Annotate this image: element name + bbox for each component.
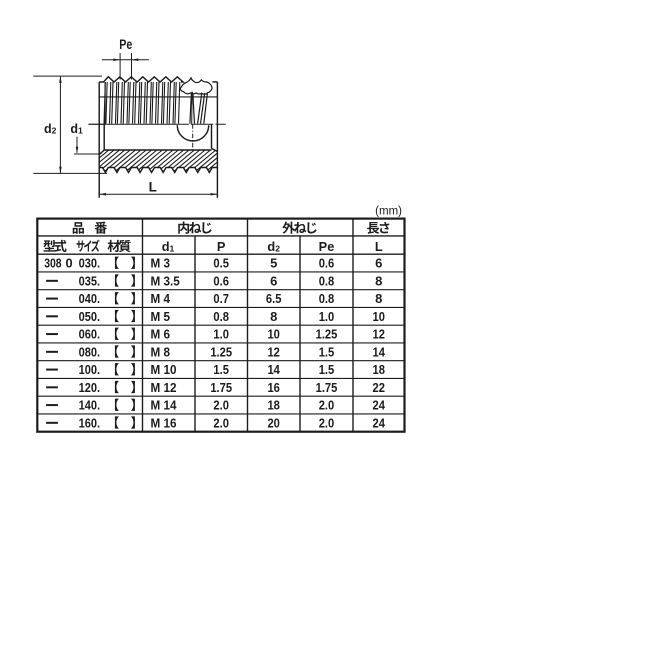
svg-text:160.: 160. [79,415,101,430]
svg-text:035.: 035. [79,273,101,288]
svg-text:080.: 080. [79,344,101,359]
svg-text:L: L [149,180,157,195]
svg-text:030.: 030. [79,256,101,271]
svg-text:M 4: M 4 [151,291,171,306]
svg-text:M 14: M 14 [151,398,178,413]
svg-text:0.8: 0.8 [319,291,335,306]
svg-text:2.0: 2.0 [319,415,335,430]
svg-text:M 6: M 6 [151,327,171,342]
svg-text:1.5: 1.5 [213,362,229,377]
svg-text:2.0: 2.0 [319,398,335,413]
svg-text:040.: 040. [79,291,101,306]
svg-text:8: 8 [375,291,382,306]
svg-text:8: 8 [375,273,382,288]
svg-text:24: 24 [373,415,386,430]
svg-text:2.0: 2.0 [213,398,229,413]
svg-text:0.8: 0.8 [213,309,229,324]
svg-text:L: L [375,239,383,254]
svg-text:M 8: M 8 [151,344,171,359]
svg-text:0.6: 0.6 [319,256,335,271]
svg-text:Pe: Pe [319,239,335,254]
svg-text:20: 20 [267,415,279,430]
svg-text:M 3.5: M 3.5 [151,273,180,288]
svg-text:1.5: 1.5 [319,344,335,359]
svg-text:1.5: 1.5 [319,362,335,377]
svg-text:P: P [217,239,226,254]
svg-text:(mm): (mm) [375,206,402,218]
svg-text:12: 12 [373,327,385,342]
svg-text:18: 18 [267,398,279,413]
svg-text:120.: 120. [79,380,101,395]
svg-text:14: 14 [373,344,386,359]
svg-text:M 10: M 10 [151,362,177,377]
svg-text:6.5: 6.5 [266,291,282,306]
svg-text:1.0: 1.0 [319,309,335,324]
svg-text:0: 0 [65,256,72,271]
svg-text:16: 16 [267,380,279,395]
svg-text:M 3: M 3 [151,256,171,271]
svg-text:0.6: 0.6 [213,273,229,288]
svg-text:060.: 060. [79,327,101,342]
svg-text:0.8: 0.8 [319,273,335,288]
svg-text:14: 14 [267,362,280,377]
svg-text:1.25: 1.25 [316,327,338,342]
svg-text:10: 10 [373,309,385,324]
svg-text:12: 12 [267,344,279,359]
svg-text:Pe: Pe [119,37,132,52]
svg-text:6: 6 [270,273,277,288]
svg-text:100.: 100. [79,362,101,377]
svg-text:M 12: M 12 [151,380,177,395]
svg-text:050.: 050. [79,309,101,324]
svg-text:1.75: 1.75 [316,380,338,395]
svg-text:22: 22 [373,380,385,395]
svg-text:M 5: M 5 [151,309,171,324]
svg-text:0.5: 0.5 [213,256,229,271]
svg-text:2.0: 2.0 [213,415,229,430]
svg-text:18: 18 [373,362,385,377]
svg-text:140.: 140. [79,398,101,413]
svg-text:1.25: 1.25 [210,344,232,359]
svg-text:M 16: M 16 [151,415,177,430]
svg-text:10: 10 [267,327,279,342]
svg-text:1.75: 1.75 [210,380,232,395]
svg-text:308: 308 [44,256,61,271]
svg-text:5: 5 [270,256,277,271]
svg-text:0.7: 0.7 [213,291,229,306]
svg-text:1.0: 1.0 [213,327,229,342]
svg-text:6: 6 [375,256,382,271]
svg-text:8: 8 [270,309,277,324]
svg-text:24: 24 [373,398,386,413]
